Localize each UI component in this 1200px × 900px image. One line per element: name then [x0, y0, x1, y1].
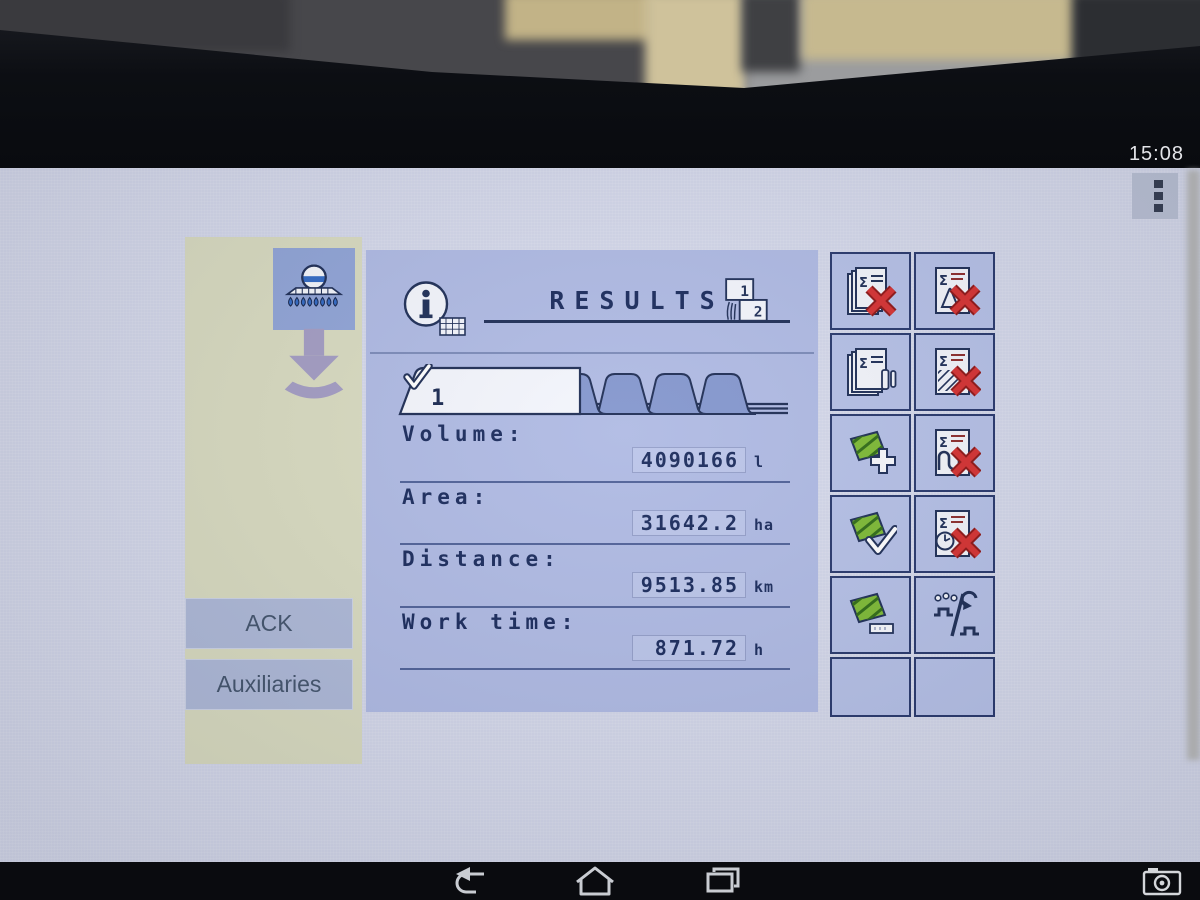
page-sigma-area-red-x-icon: [929, 346, 981, 398]
result-row-area: Area: 31642.2 ha: [400, 485, 790, 548]
softkey-empty[interactable]: [830, 657, 911, 717]
home-icon[interactable]: [571, 864, 619, 898]
terminal-screen: ACK Auxiliaries RESULTS 2 1: [0, 168, 1200, 862]
row-divider: [400, 606, 790, 608]
sprayer-button[interactable]: [273, 248, 355, 330]
camera-icon[interactable]: [1140, 864, 1184, 898]
page-2-number: 2: [754, 304, 763, 321]
reset-area-counter-button[interactable]: [914, 333, 995, 411]
page-sigma-volume-red-x-icon: [929, 265, 981, 317]
result-unit: km: [754, 578, 774, 596]
room-edge: [1187, 170, 1200, 760]
status-clock: 15:08: [1129, 143, 1184, 166]
result-label: Distance:: [402, 547, 561, 571]
sprayer-icon: [282, 262, 346, 316]
result-unit: ha: [754, 516, 774, 534]
implement-panel: ACK Auxiliaries: [185, 237, 362, 764]
softkey-empty[interactable]: [914, 657, 995, 717]
field-label-button[interactable]: [830, 576, 911, 654]
auxiliaries-label: Auxiliaries: [217, 671, 322, 698]
result-label: Volume:: [402, 422, 526, 446]
result-unit: l: [754, 453, 764, 471]
result-row-worktime: Work time: 871.72 h: [400, 610, 790, 673]
auxiliaries-button[interactable]: Auxiliaries: [185, 659, 353, 710]
reset-total-counters-button[interactable]: [830, 252, 911, 330]
result-label: Work time:: [402, 610, 578, 634]
counter-stack-button[interactable]: [830, 333, 911, 411]
pages-sigma-red-x-icon: [845, 265, 897, 317]
result-row-volume: Volume: 4090166 l: [400, 422, 790, 485]
ack-label: ACK: [245, 610, 292, 637]
results-panel: RESULTS 2 1 1: [366, 250, 818, 712]
reset-volume-counter-button[interactable]: [914, 252, 995, 330]
field-check-icon: [845, 508, 897, 560]
results-rows: Volume: 4090166 l Area: 31642.2 ha Dista…: [400, 422, 790, 672]
header-divider: [370, 352, 814, 354]
result-value-box: 31642.2: [632, 510, 746, 536]
terminal-photo: Σ Σ 15:08: [0, 0, 1200, 900]
result-value-box: 9513.85: [632, 572, 746, 598]
result-value-box: 4090166: [632, 447, 746, 473]
android-nav-bar: [0, 862, 1200, 900]
page-sigma-track-red-x-icon: [929, 427, 981, 479]
back-icon[interactable]: [446, 864, 494, 898]
result-value-box: 871.72: [632, 635, 746, 661]
info-icon: [402, 280, 468, 340]
app-grid-menu-icon[interactable]: [1132, 173, 1178, 219]
page-indicator-icon[interactable]: 2 1: [722, 276, 774, 328]
nozzle-mode-toggle-icon: [929, 589, 981, 641]
field-plus-icon: [845, 427, 897, 479]
reset-worktime-counter-button[interactable]: [914, 495, 995, 573]
page-sigma-clock-red-x-icon: [929, 508, 981, 560]
row-divider: [400, 481, 790, 483]
result-label: Area:: [402, 485, 490, 509]
page-1-number: 1: [740, 283, 749, 300]
row-divider: [400, 543, 790, 545]
ack-button[interactable]: ACK: [185, 598, 353, 649]
row-divider: [400, 668, 790, 670]
result-row-distance: Distance: 9513.85 km: [400, 547, 790, 610]
field-tag-icon: [845, 589, 897, 641]
result-unit: h: [754, 641, 764, 659]
section-mode-toggle-button[interactable]: [914, 576, 995, 654]
reset-distance-counter-button[interactable]: [914, 414, 995, 492]
add-field-button[interactable]: [830, 414, 911, 492]
pages-sigma-pause-icon: [845, 346, 897, 398]
download-arrow-icon: [278, 325, 350, 409]
active-tab-number: 1: [431, 386, 444, 411]
recents-icon[interactable]: [700, 864, 748, 898]
softkey-grid: [830, 252, 998, 735]
confirm-field-button[interactable]: [830, 495, 911, 573]
counter-tabs[interactable]: 1: [398, 364, 790, 418]
